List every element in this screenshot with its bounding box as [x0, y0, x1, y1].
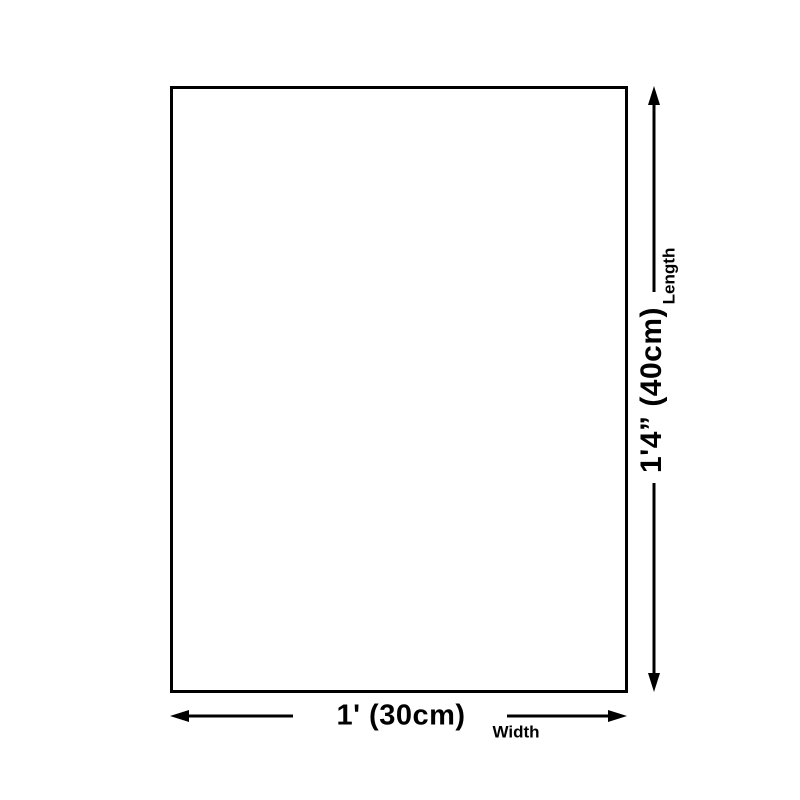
width-dimension-value: 1' (30cm) — [336, 702, 465, 731]
width-arrow-right-icon — [507, 710, 627, 722]
width-dimension-label: Width — [492, 724, 539, 741]
product-outline-rectangle — [170, 86, 628, 693]
length-dimension-label: Length — [661, 248, 678, 305]
length-arrow-up-icon — [648, 86, 660, 292]
length-dimension-value: 1'4” (40cm) — [637, 307, 667, 473]
length-arrow-down-icon — [648, 483, 660, 692]
dimension-diagram: 1'4” (40cm) Length 1' (30cm) Width — [0, 0, 800, 800]
width-arrow-left-icon — [170, 710, 293, 722]
